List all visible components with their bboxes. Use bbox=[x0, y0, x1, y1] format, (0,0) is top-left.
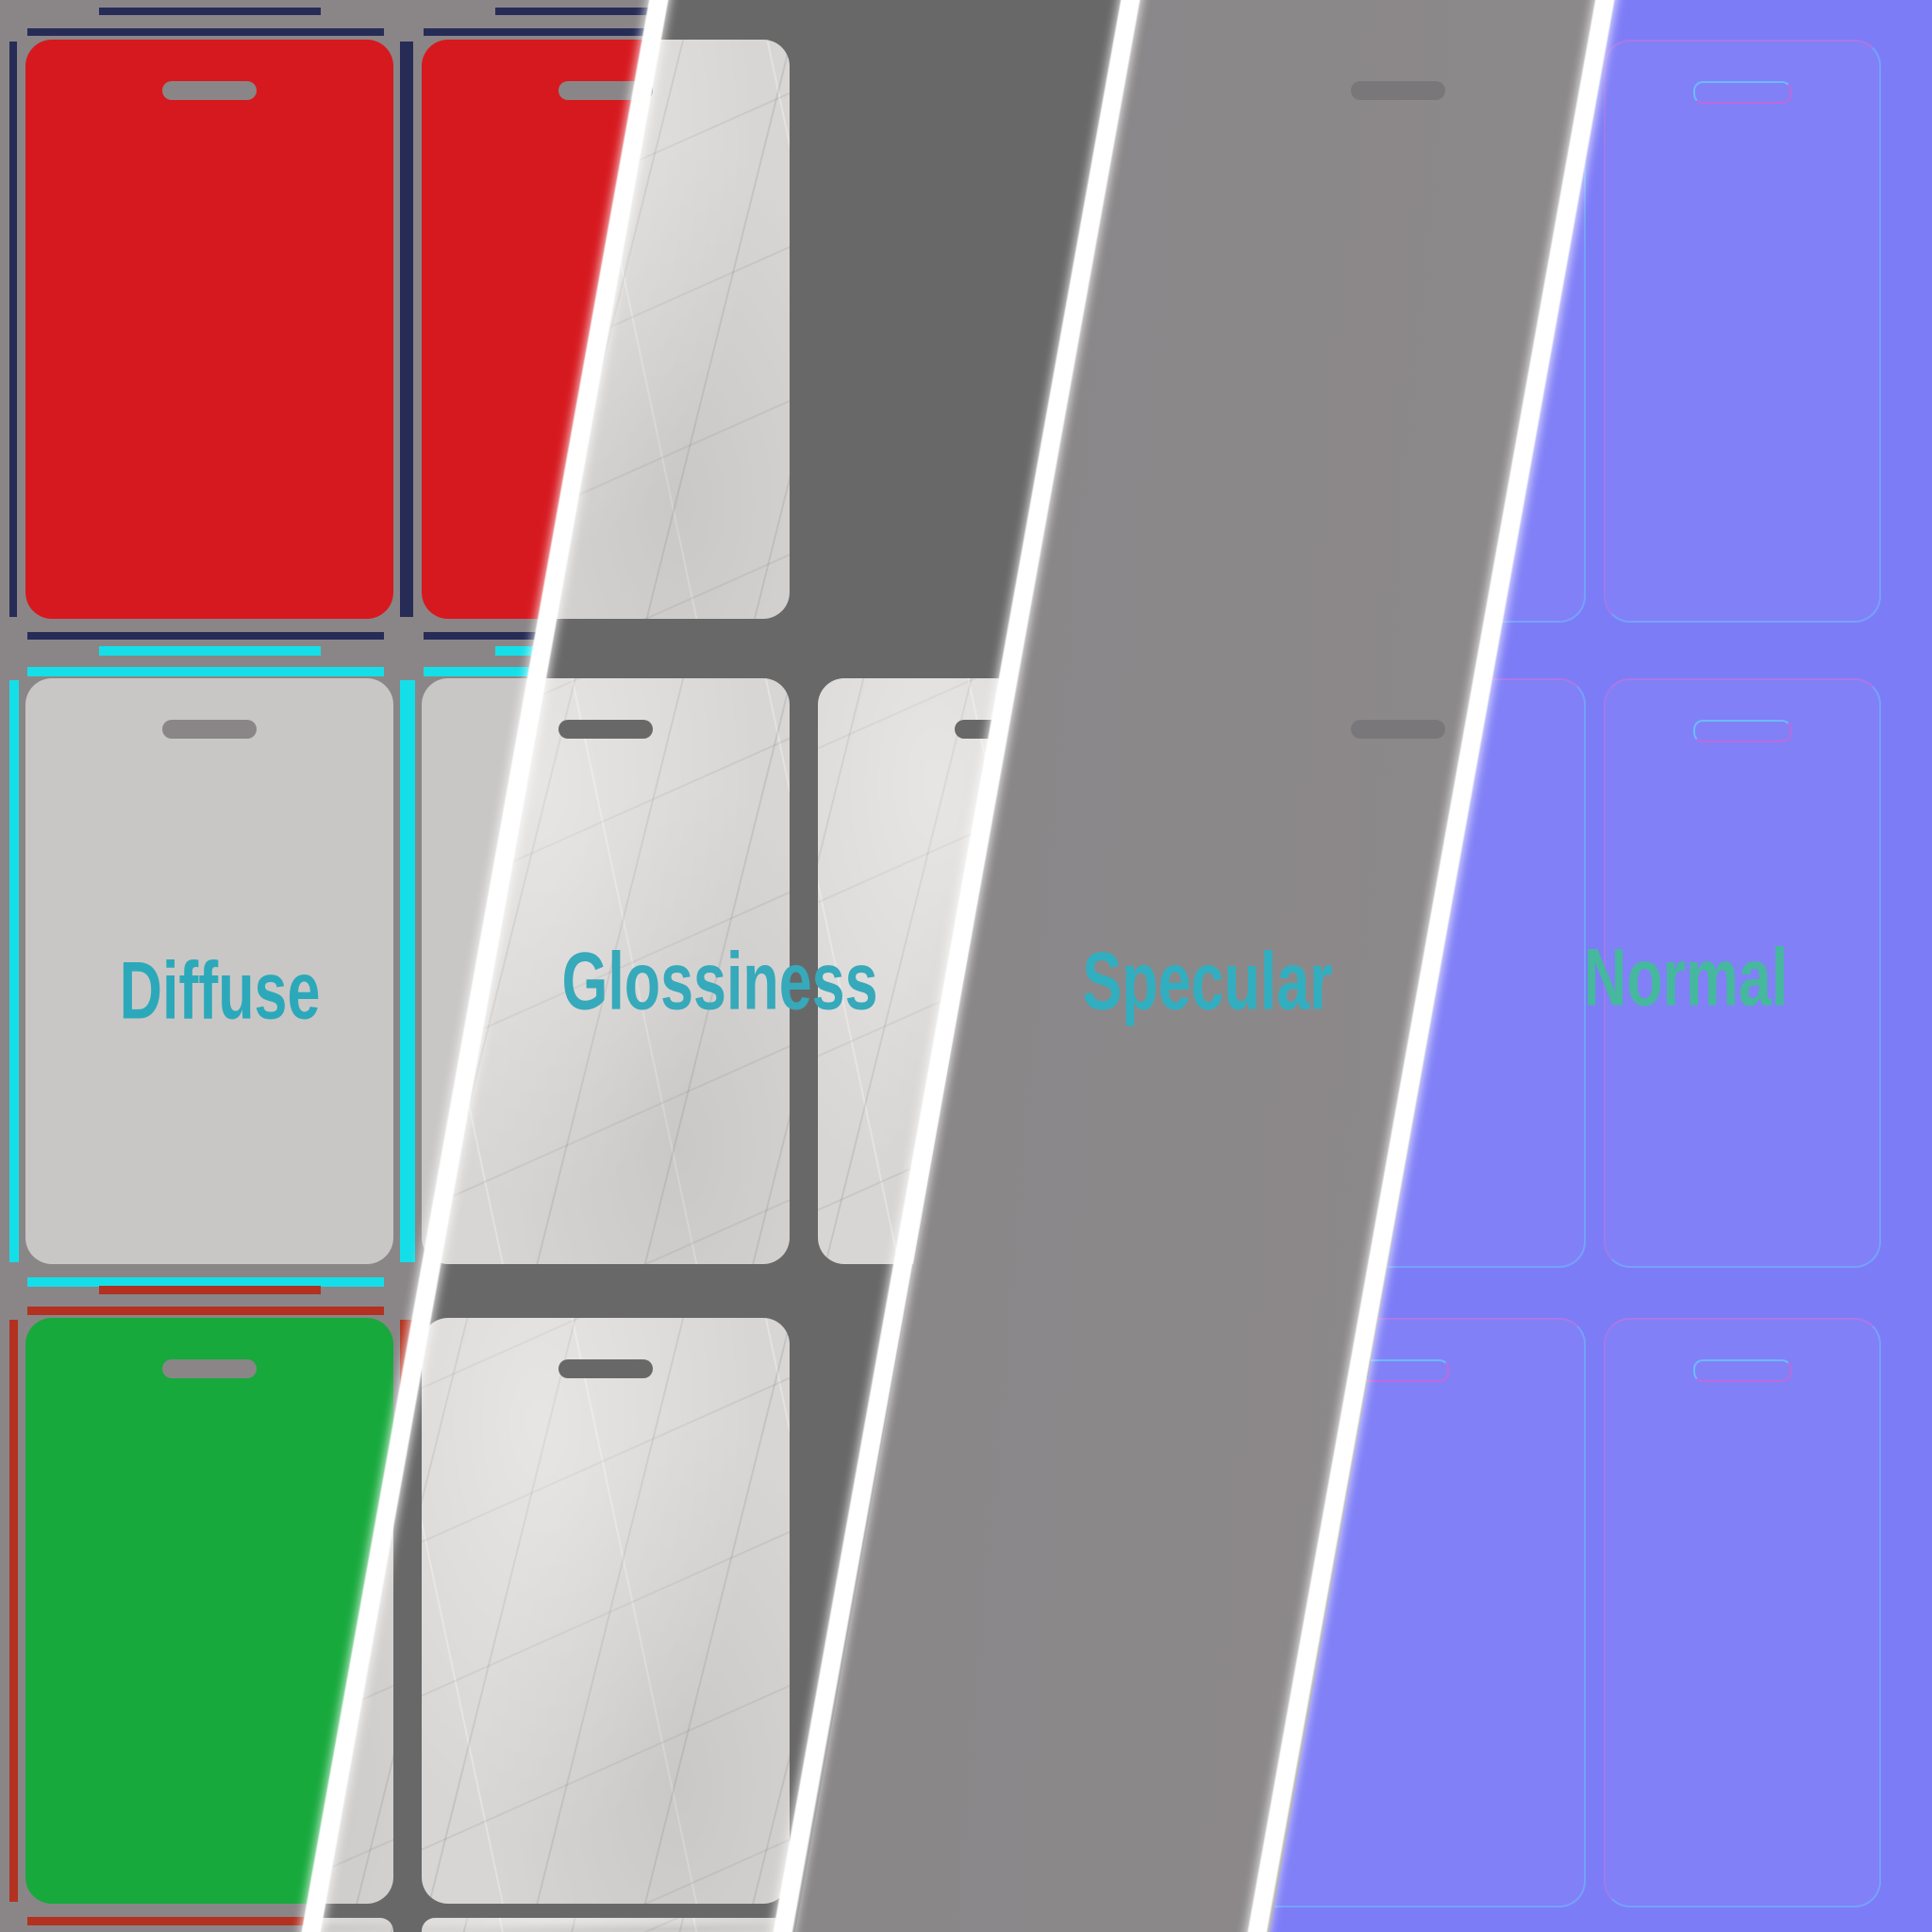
tag-outline-mark bbox=[9, 680, 19, 1262]
tag-normal-r3c5 bbox=[1604, 1318, 1881, 1907]
tag-outline-mark bbox=[9, 42, 17, 617]
map-label-glossiness: Glossiness bbox=[562, 936, 878, 1029]
tag-outline-mark bbox=[27, 28, 384, 36]
tag-hole bbox=[558, 1359, 653, 1378]
tag-glossiness-r3c2 bbox=[422, 1318, 790, 1904]
tag-hole bbox=[162, 720, 257, 739]
tag-normal-r1c5 bbox=[1604, 40, 1881, 623]
tag-outline-mark bbox=[99, 646, 321, 656]
tag-hole bbox=[1693, 81, 1791, 104]
tag-outline-mark bbox=[27, 632, 384, 640]
tag-outline-mark bbox=[406, 42, 413, 617]
tag-hole bbox=[1693, 720, 1791, 742]
tag-hole bbox=[162, 81, 257, 100]
tag-outline-mark bbox=[406, 680, 415, 1262]
tag-outline-mark bbox=[99, 1286, 321, 1294]
tag-diffuse-r1c1 bbox=[25, 40, 393, 619]
tag-stub bbox=[422, 1918, 790, 1932]
tag-hole bbox=[162, 1359, 257, 1378]
faint-hole bbox=[1351, 81, 1445, 100]
tag-outline-mark bbox=[9, 1320, 18, 1902]
tag-outline-mark bbox=[99, 8, 321, 15]
tag-outline-mark bbox=[27, 667, 384, 676]
map-label-normal: Normal bbox=[1584, 932, 1788, 1025]
tag-hole bbox=[558, 720, 653, 739]
tag-outline-mark bbox=[27, 1307, 384, 1315]
tag-hole bbox=[1693, 1359, 1791, 1382]
map-label-specular: Specular bbox=[1082, 936, 1332, 1029]
faint-hole bbox=[1351, 720, 1445, 739]
texture-atlas-preview: Diffuse Glossiness Specular Normal bbox=[0, 0, 1932, 1932]
map-label-diffuse: Diffuse bbox=[120, 945, 321, 1039]
